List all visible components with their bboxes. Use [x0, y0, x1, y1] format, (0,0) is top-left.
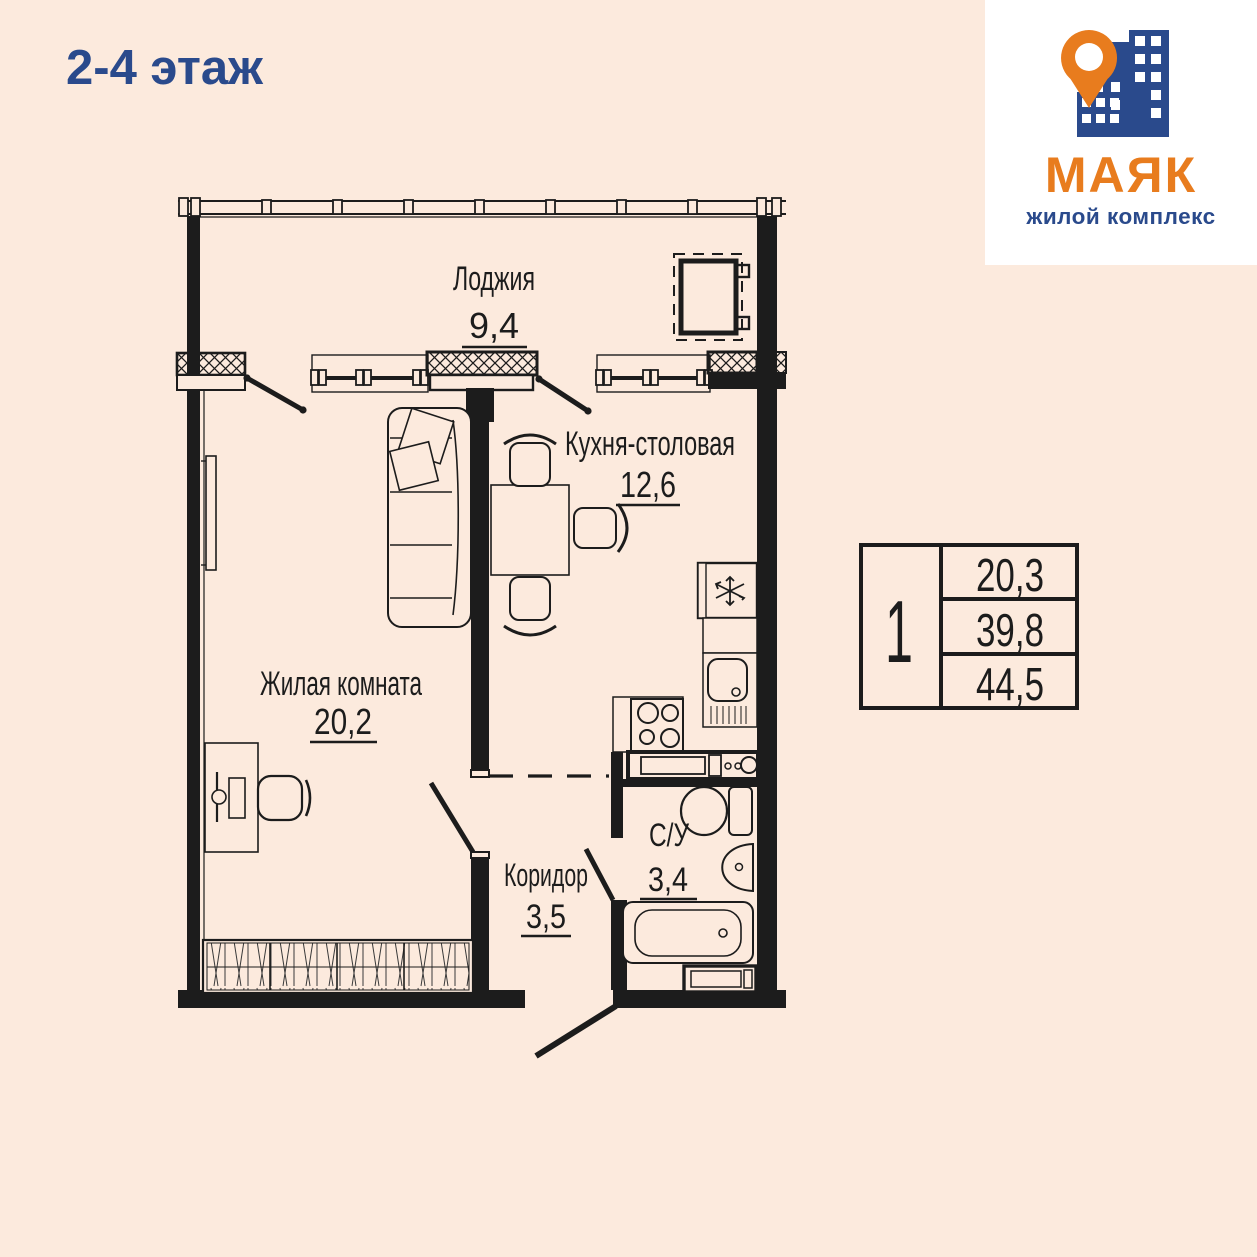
stove	[613, 697, 683, 752]
chair-right	[574, 504, 627, 552]
room-label-corridor: Коридор	[504, 857, 588, 893]
table-value-apartment-area: 39,8	[976, 604, 1044, 656]
floorplan-page: { "header": { "title": "2-4 этаж" }, "lo…	[0, 0, 1257, 1257]
dining-table	[491, 485, 569, 575]
table-value-living-area: 20,3	[976, 549, 1044, 601]
loggia-window-wall	[177, 352, 786, 422]
bathtub	[623, 902, 753, 963]
chair-top	[504, 435, 556, 486]
radiator	[201, 456, 216, 570]
room-label-bathroom: С/У	[649, 817, 690, 853]
loggia-storage-unit	[674, 254, 749, 340]
room-area-kitchen: 12,6	[620, 464, 676, 505]
room-area-loggia: 9,4	[469, 305, 519, 346]
apartment-info-table: 1 20,3 39,8 44,5	[861, 545, 1077, 710]
table-rooms-count: 1	[885, 582, 913, 681]
table-value-total-area: 44,5	[976, 658, 1044, 710]
floor-plan: Лоджия 9,4 Кухня-столовая 12,6 Жилая ком…	[0, 0, 1257, 1257]
window-living-room	[311, 355, 428, 392]
open-casement-right	[535, 375, 591, 414]
wardrobe	[203, 940, 473, 993]
room-area-corridor: 3,5	[526, 898, 566, 936]
room-area-bathroom: 3,4	[648, 861, 688, 899]
kitchen-counter	[703, 618, 757, 653]
sofa	[388, 408, 471, 627]
monitor-icon	[229, 778, 245, 818]
balcony-railing	[178, 198, 786, 217]
toilet	[681, 787, 752, 835]
washing-machine	[628, 752, 758, 779]
wall-sink	[722, 844, 753, 891]
room-label-living: Жилая комната	[260, 665, 422, 703]
bathroom-fixtures	[623, 787, 756, 992]
room-label-loggia: Лоджия	[453, 260, 535, 298]
chair-bottom	[504, 577, 556, 635]
kitchen-sink	[703, 653, 757, 727]
doors	[431, 783, 616, 1056]
open-casement-left	[243, 374, 306, 413]
desk-chair	[258, 776, 310, 820]
bath-cabinet	[684, 966, 756, 992]
desk	[205, 743, 258, 852]
room-area-living: 20,2	[314, 701, 372, 742]
fridge	[698, 563, 757, 618]
room-label-kitchen: Кухня-столовая	[565, 425, 735, 463]
entrance-door-leaf	[536, 1006, 616, 1056]
living-room-door-leaf	[431, 783, 473, 852]
window-kitchen	[596, 355, 712, 392]
bathroom-door-leaf	[586, 849, 613, 900]
